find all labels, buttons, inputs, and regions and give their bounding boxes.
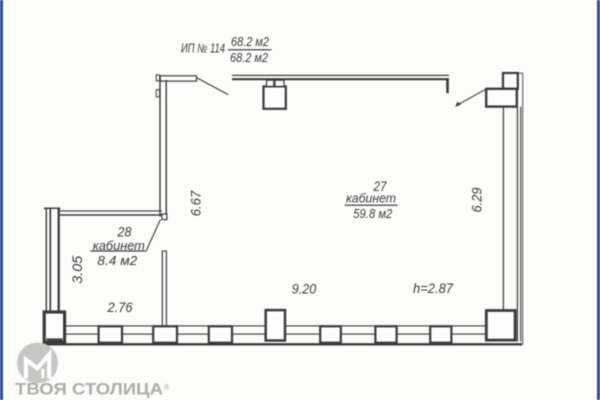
svg-text:кабинет: кабинет — [346, 190, 396, 205]
svg-text:8.4 м2: 8.4 м2 — [97, 253, 138, 268]
svg-text:®: ® — [164, 382, 170, 391]
svg-text:68.2 м2: 68.2 м2 — [230, 51, 268, 65]
svg-text:6.67: 6.67 — [188, 190, 204, 217]
svg-text:68.2 м2: 68.2 м2 — [231, 35, 269, 49]
svg-text:3.05: 3.05 — [69, 255, 85, 283]
svg-text:ТВОЯ СТОЛИЦА: ТВОЯ СТОЛИЦА — [15, 381, 163, 399]
svg-text:6.29: 6.29 — [469, 187, 485, 212]
svg-text:ИП № 114: ИП № 114 — [181, 42, 225, 56]
svg-text:9.20: 9.20 — [292, 281, 317, 297]
svg-text:2.76: 2.76 — [107, 299, 133, 315]
svg-text:h=2.87: h=2.87 — [413, 280, 454, 296]
svg-text:59.8 м2: 59.8 м2 — [353, 206, 393, 221]
